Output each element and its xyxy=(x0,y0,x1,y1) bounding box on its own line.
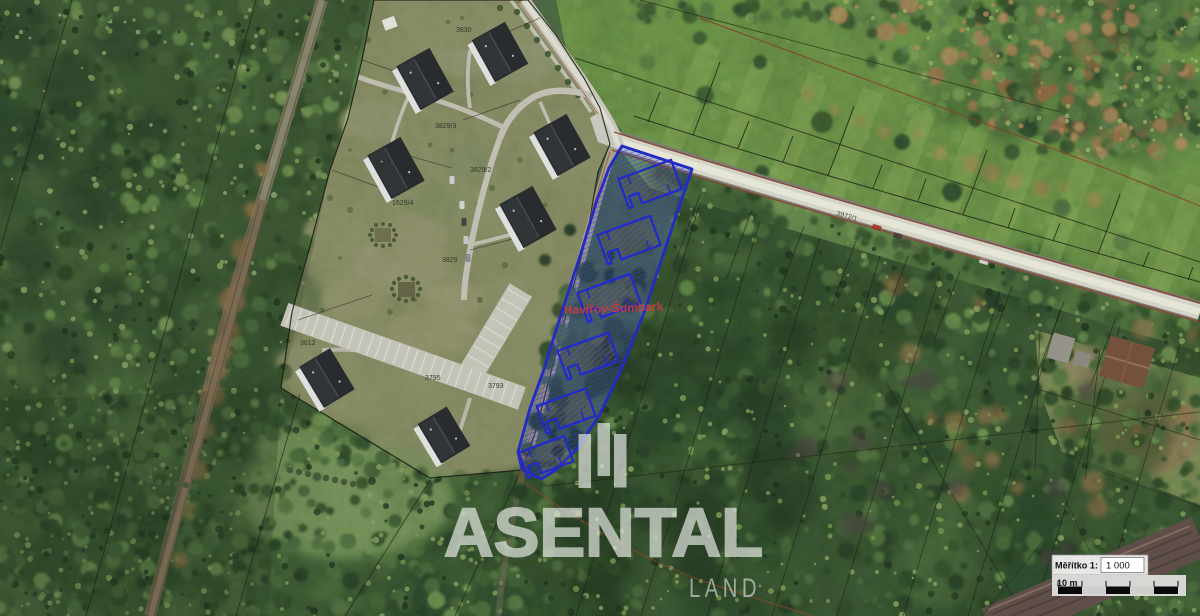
svg-text:Měřítko 1:: Měřítko 1: xyxy=(1055,561,1098,571)
svg-text:1 000: 1 000 xyxy=(1106,561,1130,572)
svg-text:LAND: LAND xyxy=(689,573,761,603)
svg-text:ASENTAL: ASENTAL xyxy=(444,494,763,571)
